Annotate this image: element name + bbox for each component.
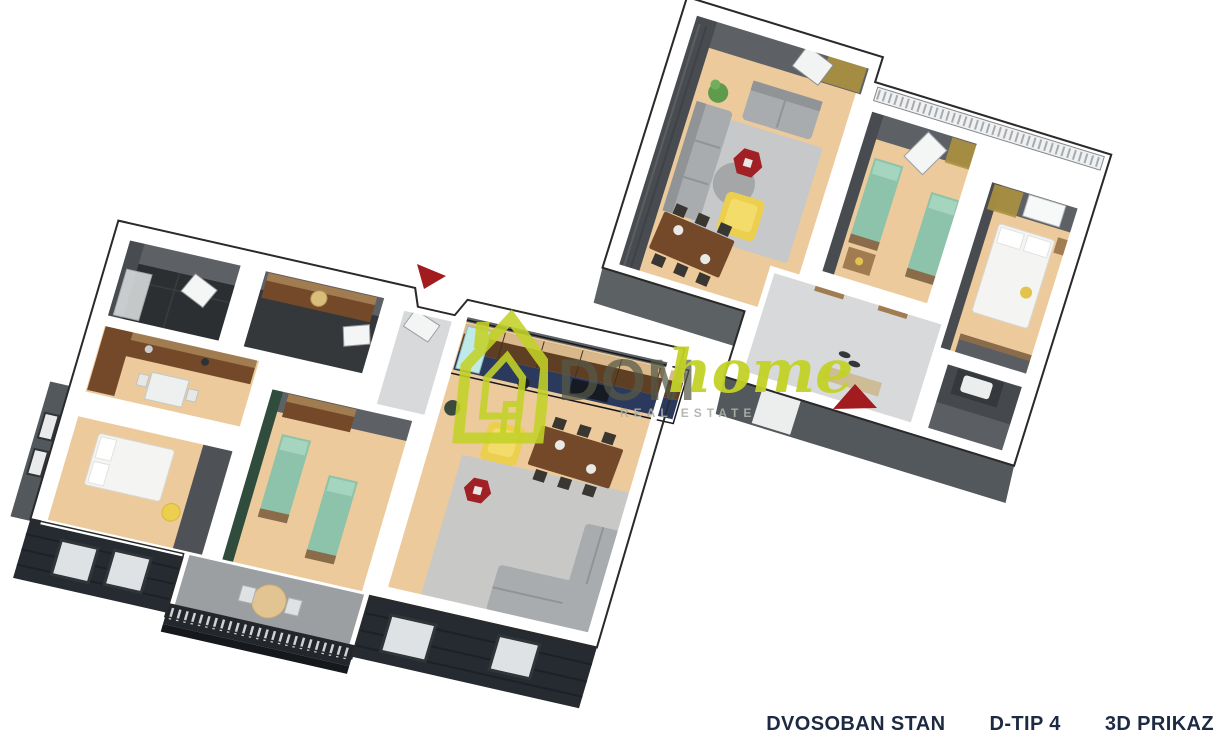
sheet-caption: DVOSOBAN STAN D-TIP 4 3D PRIKAZ [766, 713, 1214, 736]
door-leaf-icon [343, 325, 370, 347]
caption-property-type: DVOSOBAN STAN [766, 713, 945, 736]
facade-window-icon [104, 550, 151, 593]
plan-lower-left [0, 216, 695, 727]
floorplan-art [0, 0, 1224, 745]
entrance-marker-triangle-lower-plan [417, 264, 446, 289]
caption-unit-type: D-TIP 4 [989, 713, 1060, 736]
facade-window-icon [489, 635, 540, 678]
facade-window-icon [51, 540, 98, 583]
caption-view-type: 3D PRIKAZ [1105, 713, 1214, 736]
floorplan-sheet: DOM home REAL ESTATE DVOSOBAN STAN D-TIP… [0, 0, 1224, 745]
facade-window-icon [381, 615, 436, 661]
